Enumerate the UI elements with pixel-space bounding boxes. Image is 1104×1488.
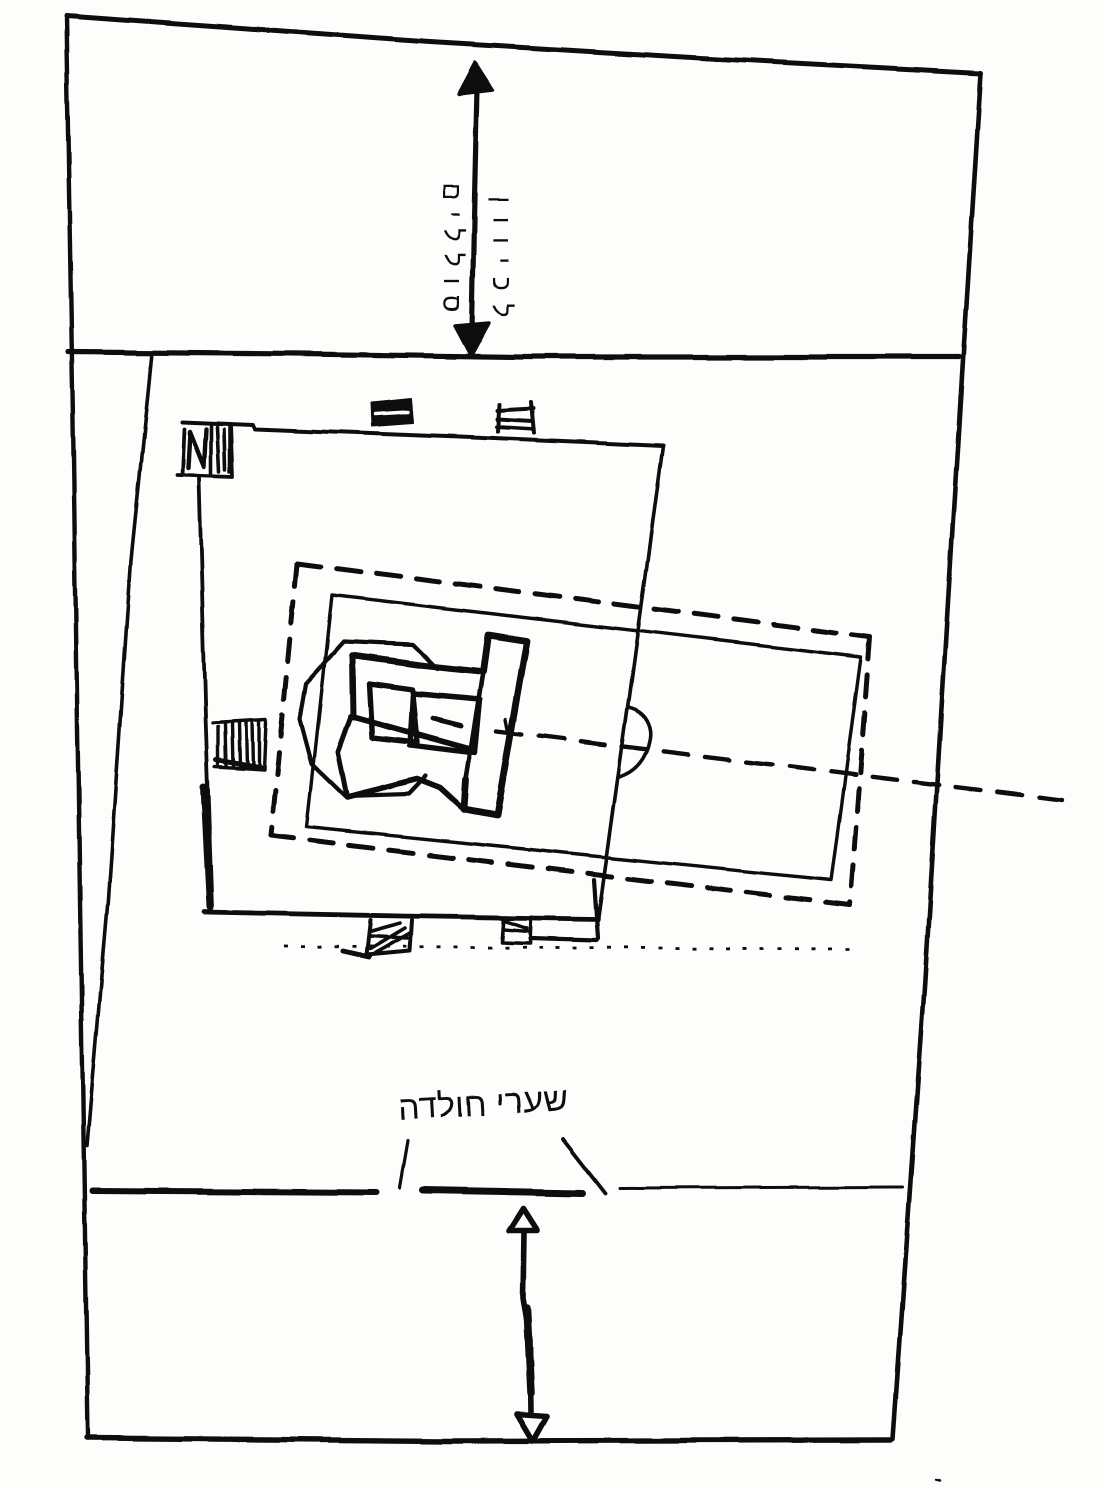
svg-text:שערי חולדה: שערי חולדה <box>397 1081 568 1128</box>
svg-text:לכיוון: לכיוון <box>487 196 517 331</box>
svg-text:סוללים: סוללים <box>438 183 468 324</box>
